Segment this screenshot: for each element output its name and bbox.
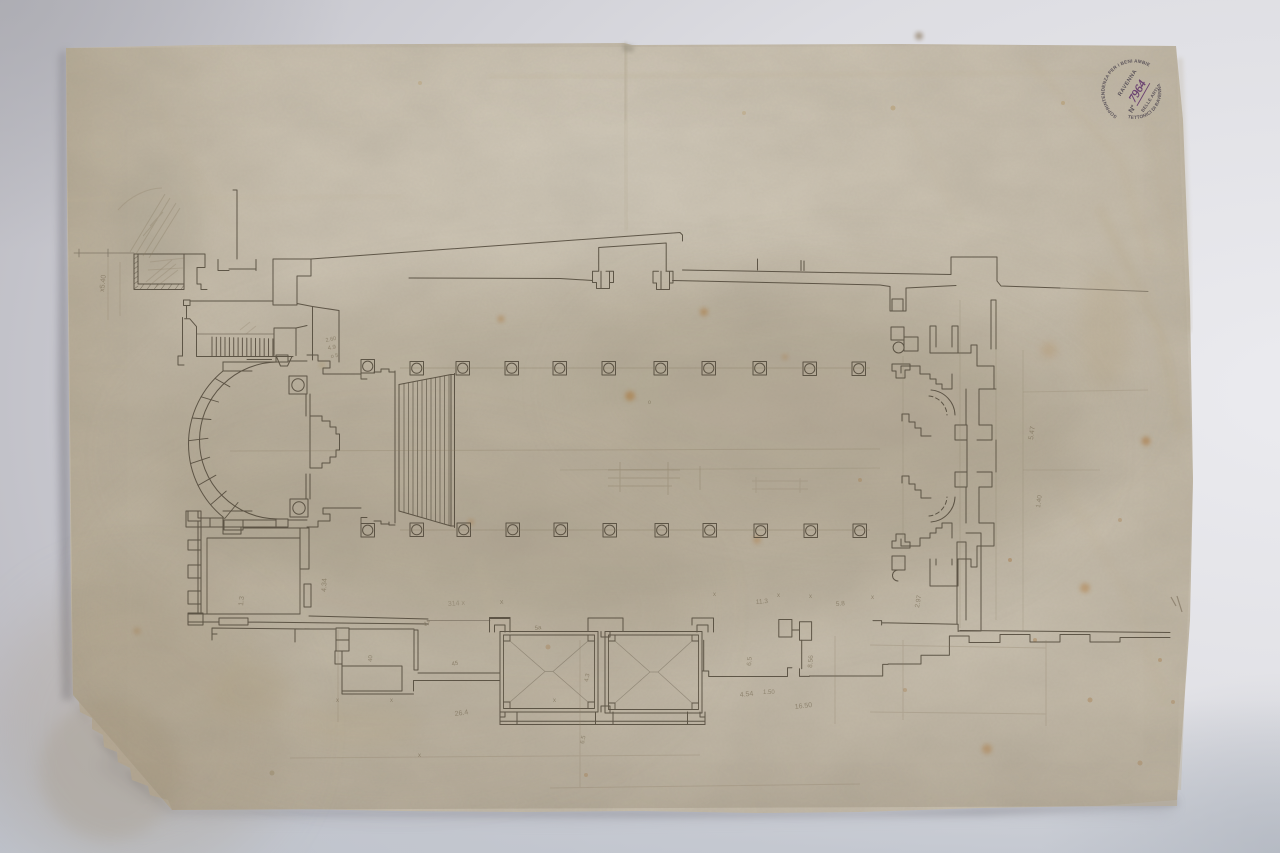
svg-text:1.3: 1.3 [238, 596, 246, 607]
svg-text:314 x: 314 x [448, 600, 466, 608]
svg-text:1.50: 1.50 [763, 690, 775, 696]
svg-text:4.54: 4.54 [739, 691, 753, 699]
svg-text:40: 40 [368, 654, 374, 662]
svg-text:6.5: 6.5 [746, 656, 754, 666]
svg-text:5.8: 5.8 [836, 600, 846, 608]
svg-text:x: x [777, 593, 780, 599]
svg-text:8.56: 8.56 [807, 655, 815, 669]
svg-text:x: x [713, 592, 716, 598]
svg-text:x: x [418, 753, 421, 759]
svg-text:x: x [809, 594, 812, 600]
svg-text:4.34: 4.34 [321, 578, 329, 592]
svg-text:x: x [336, 698, 339, 704]
svg-text:x: x [390, 698, 393, 704]
svg-text:x: x [553, 698, 556, 704]
svg-text:x: x [871, 595, 874, 601]
svg-text:11.3: 11.3 [756, 598, 769, 606]
